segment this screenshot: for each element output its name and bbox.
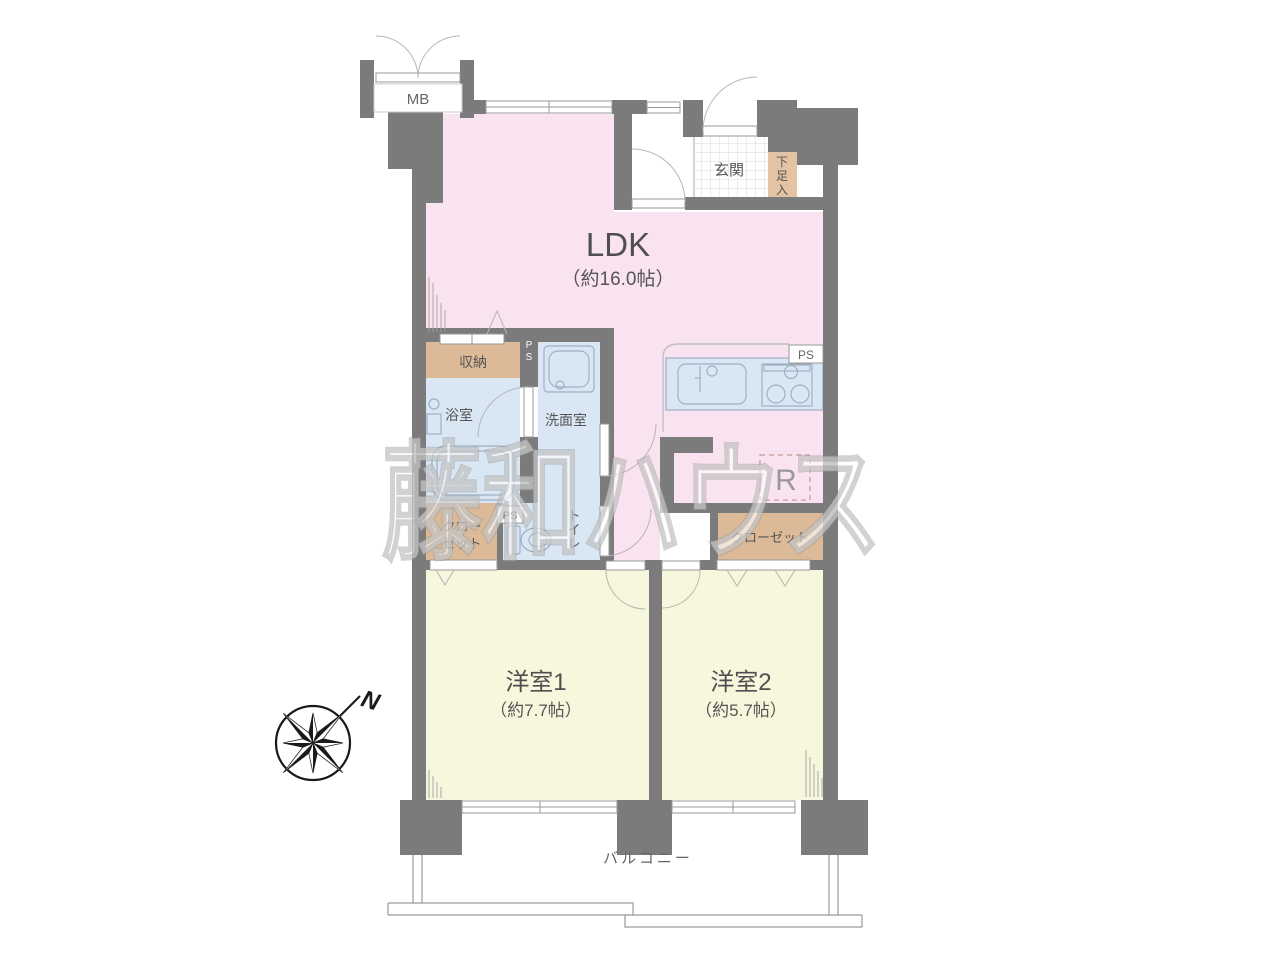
compass-north-label: N: [358, 685, 383, 716]
bedroom2-size-label: （約5.7帖）: [695, 701, 787, 720]
ldk-size-label: （約16.0帖）: [562, 268, 675, 290]
balcony-label: バルコニー: [603, 850, 693, 867]
kitchen-counter: [666, 358, 823, 410]
compass-north-pointer: [340, 696, 360, 716]
svg-text:入: 入: [776, 183, 788, 197]
bathroom-label: 浴室: [445, 407, 473, 423]
compass-rose: N: [276, 685, 383, 780]
ldk-top-window: [486, 101, 612, 113]
svg-text:P: P: [526, 340, 533, 351]
bedroom2-balcony-window: [672, 801, 795, 813]
svg-text:足: 足: [776, 169, 788, 183]
storage-label: 収納: [459, 354, 487, 370]
floor-plan-page: MB LDK （約16.0帖） 玄関 下 足 入 収納 P S 浴室 洗面室 ト…: [0, 0, 1280, 960]
svg-text:下: 下: [776, 155, 788, 169]
bedroom2-label: 洋室2: [710, 669, 771, 696]
entry-door: [703, 77, 757, 136]
pipe-space-wash-label: P S: [526, 340, 533, 363]
watermark: 藤和ハウス: [382, 433, 882, 576]
washroom-label: 洗面室: [545, 412, 587, 428]
bedroom1-label: 洋室1: [505, 669, 566, 696]
pipe-space-kitchen-label: PS: [798, 348, 814, 362]
ldk-label: LDK: [586, 226, 650, 263]
floor-plan: MB LDK （約16.0帖） 玄関 下 足 入 収納 P S 浴室 洗面室 ト…: [0, 0, 1280, 960]
shoe-cabinet-label: 下 足 入: [776, 155, 788, 197]
entrance-label: 玄関: [714, 162, 744, 179]
svg-text:S: S: [526, 352, 533, 363]
bedroom1-size-label: （約7.7帖）: [490, 701, 582, 720]
hall-top-window: [647, 102, 680, 113]
meter-box-label: MB: [407, 91, 430, 108]
bedroom1-balcony-window: [462, 801, 617, 813]
